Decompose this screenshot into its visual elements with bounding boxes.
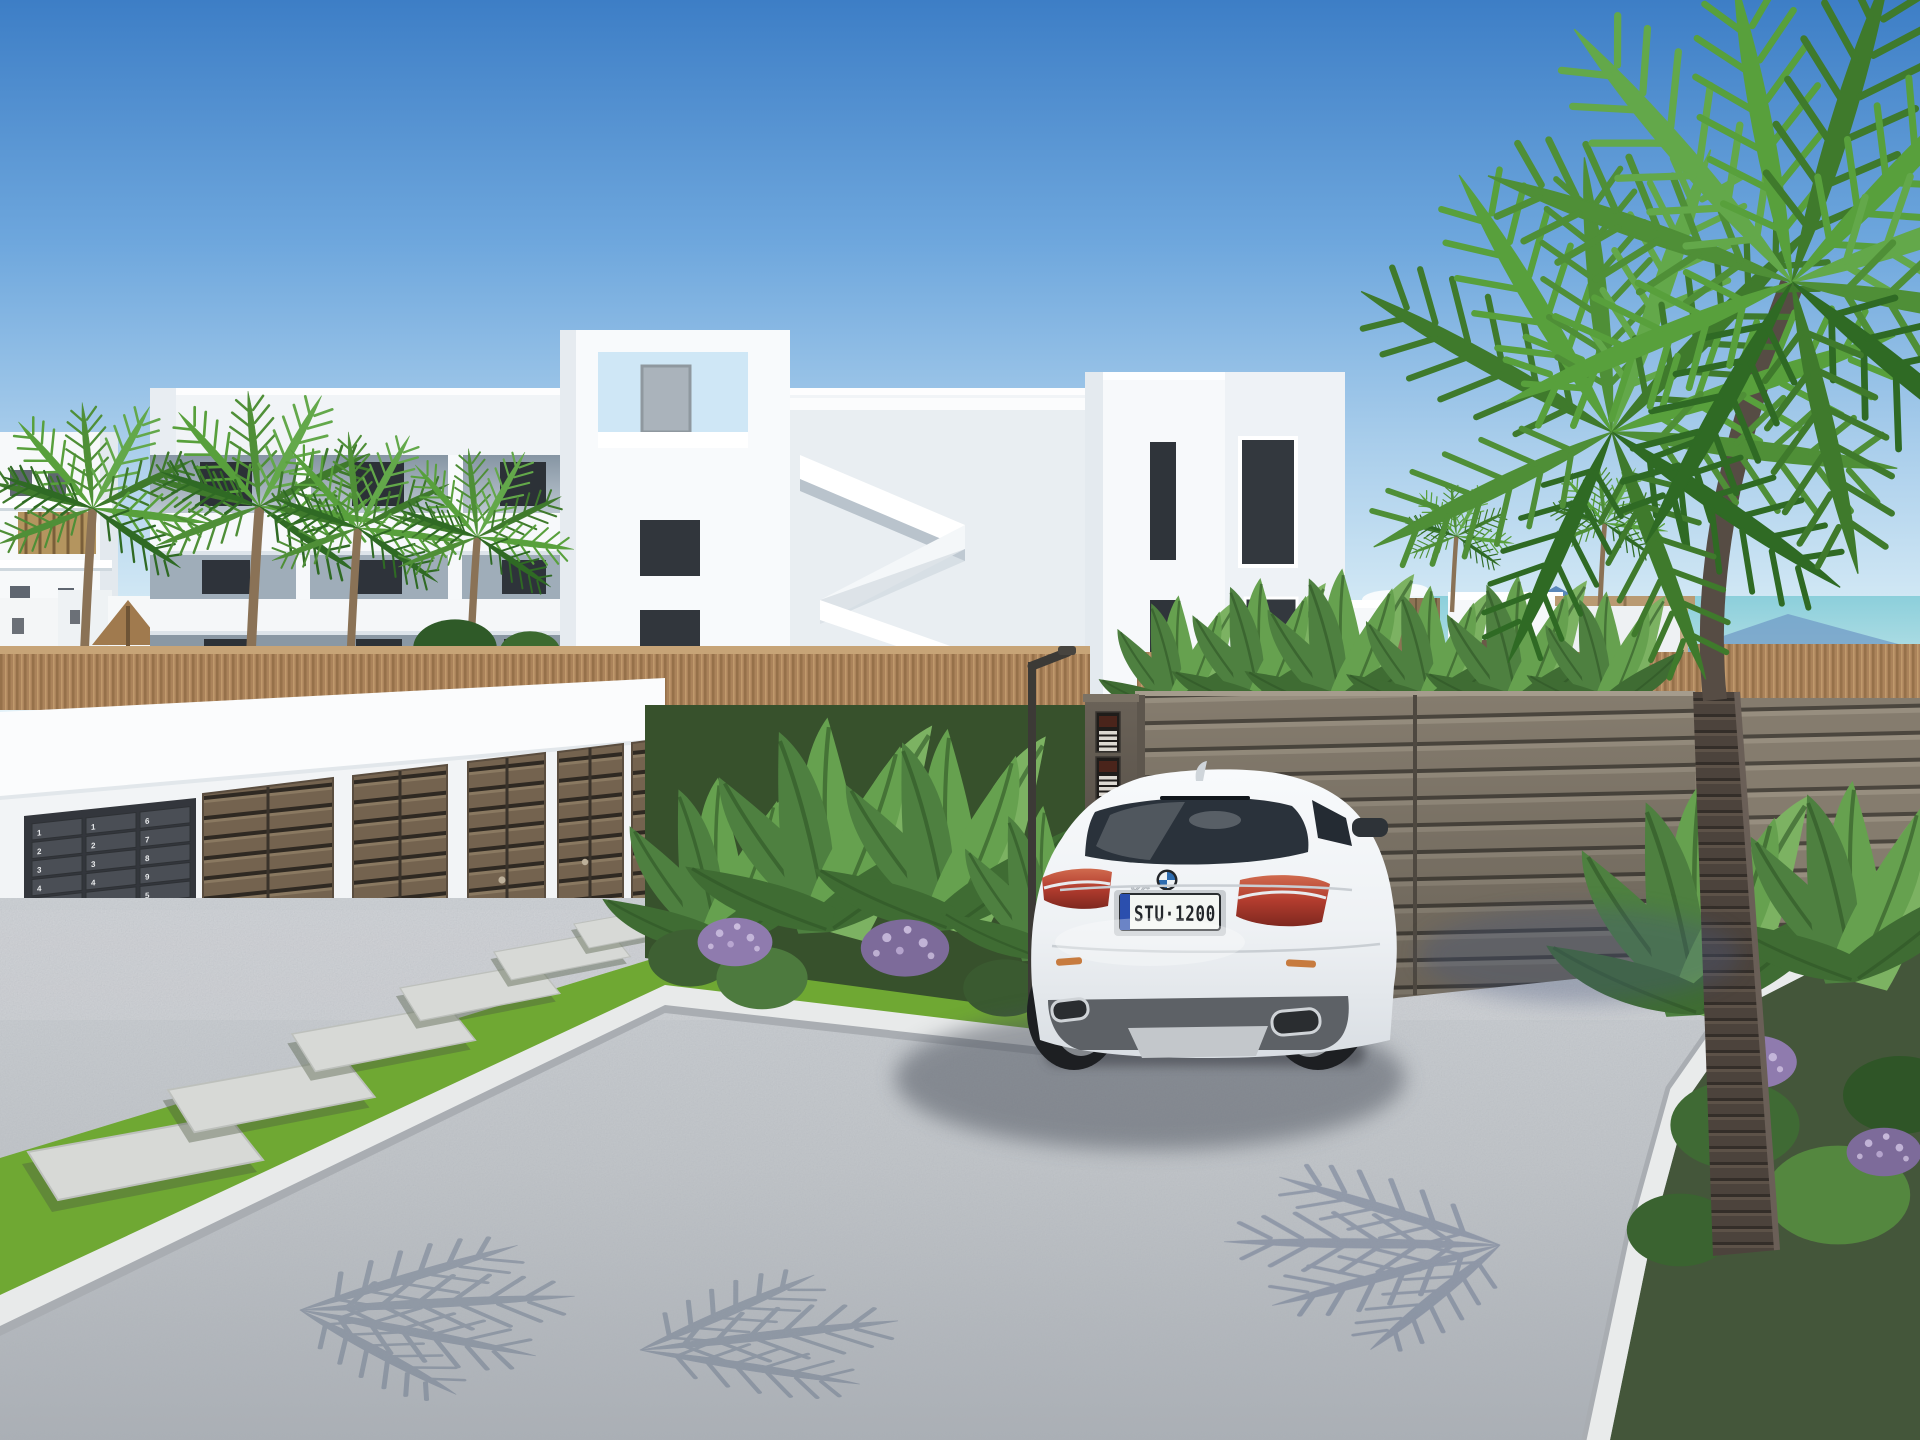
flower-cluster <box>698 918 773 966</box>
mailbox-number: 1 <box>91 822 96 832</box>
mailbox-number: 4 <box>37 884 42 894</box>
car-tail-light-right <box>1236 875 1330 926</box>
flower-cluster <box>861 919 949 976</box>
mailbox-number: 8 <box>145 854 150 864</box>
car-side-mirror <box>1352 818 1388 837</box>
mailbox-number: 3 <box>91 860 96 870</box>
mailbox-number: 2 <box>37 847 42 857</box>
car-exhaust-left <box>1051 998 1089 1022</box>
flower-cluster <box>1847 1128 1920 1176</box>
render-scene: 123451234512123451234512678956789512 <box>0 0 1920 1440</box>
mailbox-number: 1 <box>37 828 42 838</box>
tower-slab <box>598 432 748 448</box>
gate-pillar-cap <box>1083 694 1139 702</box>
tower-window <box>640 520 700 576</box>
stair-link <box>790 398 1090 678</box>
car-exhaust-right <box>1271 1008 1321 1036</box>
mailbox-number: 6 <box>145 816 150 826</box>
body-reflection <box>1055 918 1245 966</box>
mailbox-number: 3 <box>37 865 42 875</box>
car-skid-plate <box>1128 1026 1268 1058</box>
crown-shadow-blob <box>1420 907 1740 1003</box>
mailbox-number: 4 <box>91 878 96 888</box>
intercom-panel <box>1096 712 1120 752</box>
right-wing-window <box>1150 442 1176 560</box>
elevator-shaft-door <box>642 366 690 432</box>
mailbox-number: 7 <box>145 835 150 845</box>
bmw-roundel-icon <box>1157 870 1178 891</box>
mailbox-number: 2 <box>91 841 96 851</box>
mailbox-number: 9 <box>145 872 150 882</box>
right-wing-window <box>1240 438 1296 566</box>
stair-tower <box>560 330 790 660</box>
car-brake-light <box>1160 796 1250 800</box>
